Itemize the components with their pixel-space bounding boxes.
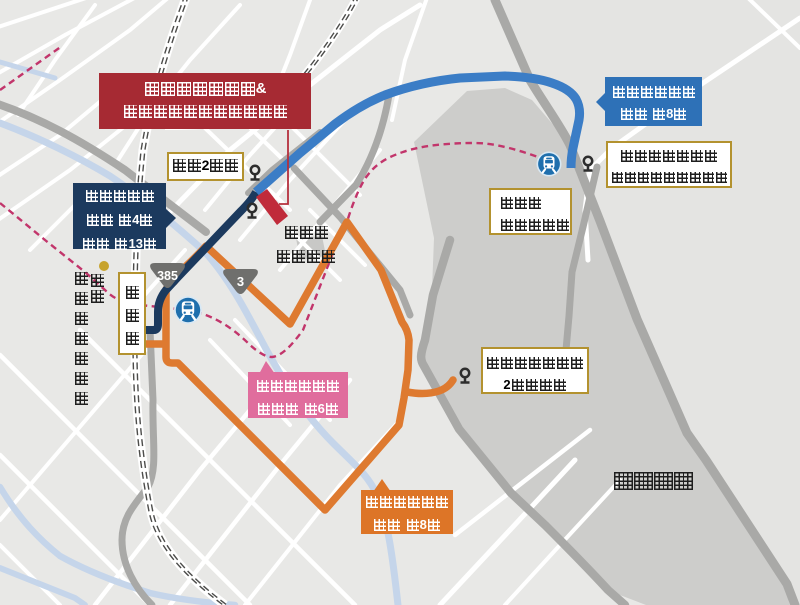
svg-text:385: 385 (157, 269, 178, 283)
svg-text:3: 3 (237, 274, 244, 289)
